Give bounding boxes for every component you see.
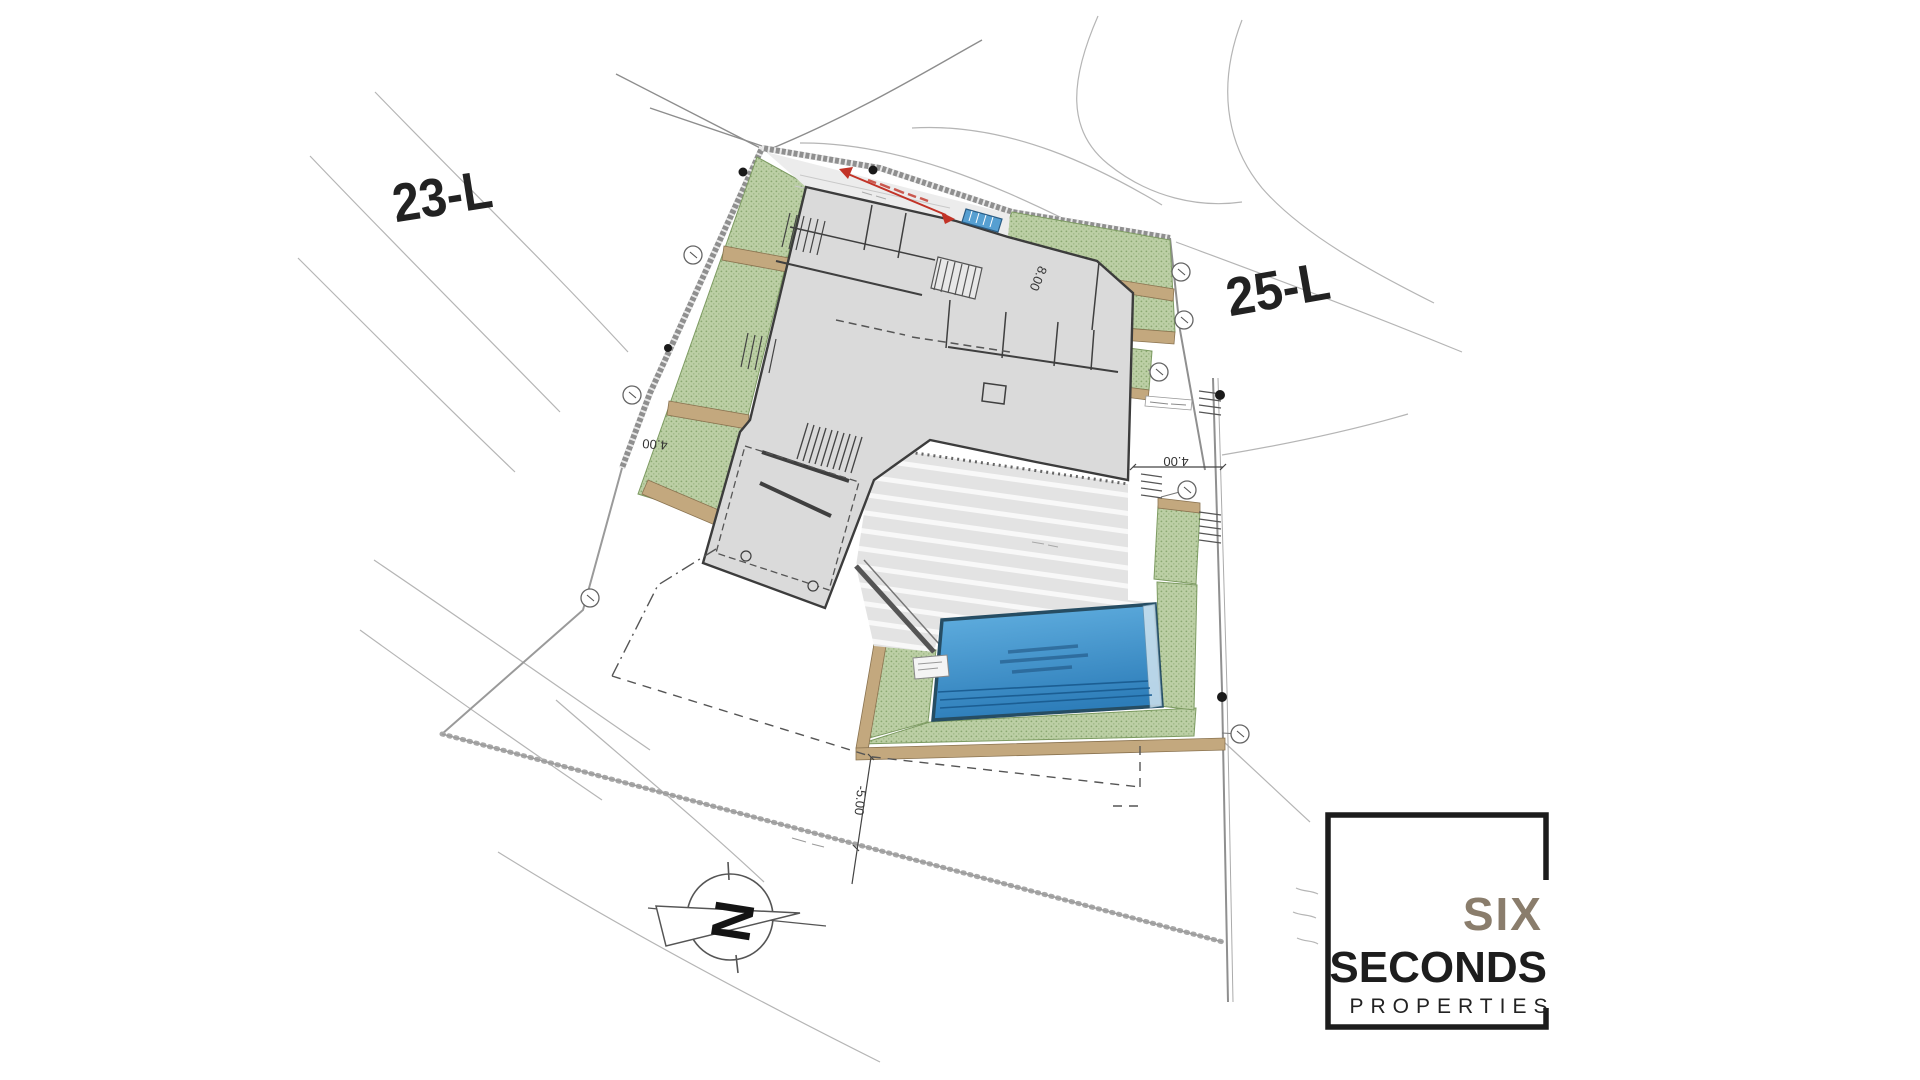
logo-word-seconds: SECONDS: [1329, 943, 1547, 992]
parcel-label-left: 23-L: [388, 159, 496, 234]
pool-surround-green-right: [1157, 582, 1197, 710]
label-box-east: [1145, 396, 1192, 410]
dim-left-strip: 4.00: [642, 436, 668, 453]
road-edge-lines: [616, 40, 982, 152]
company-logo: SIX SECONDS PROPERTIES: [1328, 815, 1554, 1027]
planting-bed-east: [1154, 506, 1200, 584]
pool-steps-box: [913, 655, 949, 679]
logo-word-properties: PROPERTIES: [1350, 995, 1555, 1018]
compass-north-letter: N: [699, 896, 768, 946]
swimming-pool: [913, 604, 1162, 720]
parcel-label-right: 25-L: [1222, 251, 1335, 328]
site-plan-page: 4.00 -5.00 4.00 8.00 23-L 25-L N SIX SEC…: [0, 0, 1920, 1080]
dim-right-setback: 4.00: [1163, 454, 1188, 469]
site-plan-drawing: 4.00 -5.00 4.00 8.00 23-L 25-L N SIX SEC…: [0, 0, 1920, 1080]
logo-word-six: SIX: [1463, 888, 1543, 940]
dim-south-setback: -5.00: [851, 785, 869, 816]
north-arrow-compass: N: [648, 862, 826, 973]
